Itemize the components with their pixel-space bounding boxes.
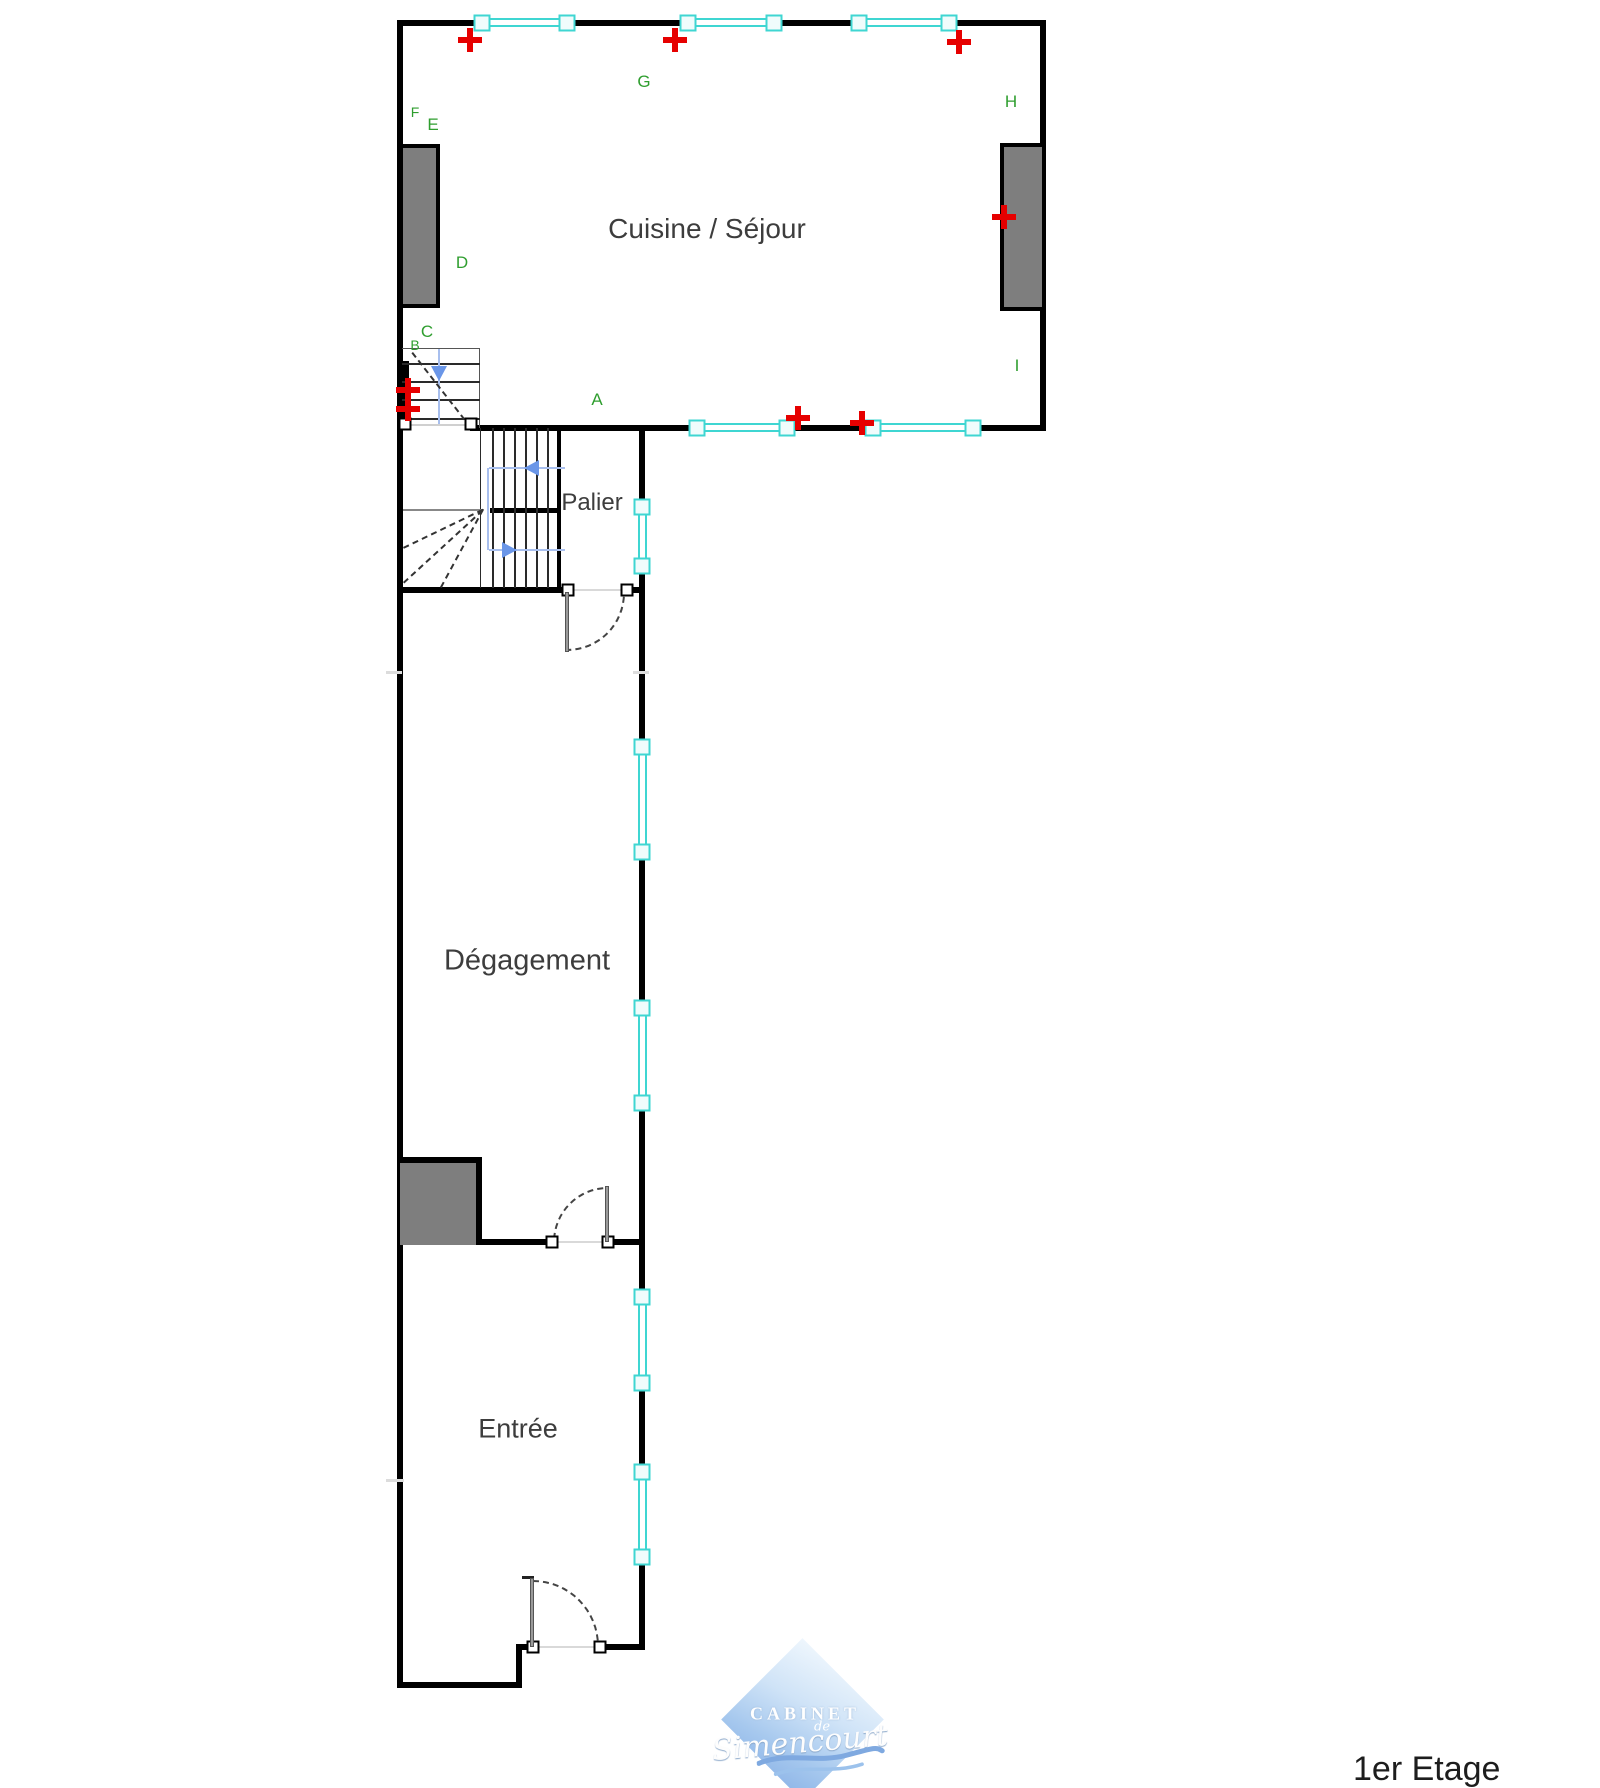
window-endpoint <box>634 1549 651 1566</box>
red-cross-marker <box>992 205 1016 229</box>
ref-letter-f: F <box>411 104 420 120</box>
door-post <box>594 1641 607 1654</box>
door-leaf <box>565 592 569 652</box>
window-cuisine-bottom-2 <box>873 423 973 432</box>
door-post <box>465 418 478 431</box>
stair-tread <box>547 428 549 588</box>
red-cross-marker <box>850 411 874 435</box>
stair-tread <box>402 363 480 365</box>
wall-entree-bottom-right <box>600 1644 645 1650</box>
window-top-2 <box>688 18 774 27</box>
winder-line-dashed <box>403 510 483 584</box>
wall-tick <box>386 1479 404 1482</box>
winder-line <box>403 509 482 511</box>
room-label-degagement: Dégagement <box>444 945 610 978</box>
stair-arrow-left-icon <box>524 460 539 476</box>
window-endpoint <box>634 1464 651 1481</box>
window-endpoint <box>634 739 651 756</box>
ref-letter-d: D <box>456 253 468 273</box>
ref-letter-c: C <box>421 322 433 342</box>
stair-path-vertical <box>487 468 489 550</box>
ref-letter-i: I <box>1015 356 1020 376</box>
window-corridor-4 <box>638 1297 647 1383</box>
floor-label: 1er Etage <box>1353 1750 1500 1788</box>
wall-tick <box>633 671 649 674</box>
stair-path-bottom <box>489 549 565 551</box>
door-post <box>546 1236 559 1249</box>
window-endpoint <box>634 1289 651 1306</box>
radiator-left <box>399 144 440 308</box>
door-swing-arc <box>553 1187 608 1242</box>
window-endpoint <box>634 844 651 861</box>
door-opening-line <box>539 1646 597 1648</box>
window-endpoint <box>634 1095 651 1112</box>
red-cross-marker <box>786 406 810 430</box>
door-leaf <box>530 1578 534 1647</box>
window-endpoint <box>634 499 651 516</box>
room-label-cuisine-sejour: Cuisine / Séjour <box>608 213 806 245</box>
ref-letter-g: G <box>637 72 650 92</box>
room-label-palier: Palier <box>561 489 622 517</box>
stair-tread <box>525 428 527 588</box>
red-cross-marker <box>458 28 482 52</box>
wall-entree-bottom <box>397 1682 522 1688</box>
door-leaf <box>605 1186 609 1242</box>
stair-tread <box>503 428 505 588</box>
red-cross-marker <box>396 397 420 421</box>
window-corridor-3 <box>638 1008 647 1103</box>
floorplan-canvas: A B C D E F G H I Cuisine / Séjour Palie… <box>0 0 1600 1788</box>
ref-letter-b: B <box>410 337 419 353</box>
window-corridor-2 <box>638 747 647 852</box>
window-endpoint <box>634 558 651 575</box>
window-top-3 <box>859 18 949 27</box>
window-corridor-5 <box>638 1472 647 1557</box>
chimney-block <box>400 1157 482 1245</box>
stair-tread <box>514 428 516 588</box>
window-endpoint <box>851 15 868 32</box>
window-endpoint <box>634 1375 651 1392</box>
wall-tick <box>386 671 402 674</box>
window-endpoint <box>965 420 982 437</box>
window-top-1 <box>482 18 567 27</box>
ref-letter-e: E <box>427 115 438 135</box>
stair-tread <box>492 428 494 588</box>
stair-tread <box>536 428 538 588</box>
window-endpoint <box>559 15 576 32</box>
stair-edge <box>480 428 481 588</box>
stair-arrow-right-icon <box>502 542 517 558</box>
window-endpoint <box>766 15 783 32</box>
room-label-entree: Entrée <box>478 1414 558 1445</box>
window-cuisine-bottom-1 <box>697 423 787 432</box>
door-swing-arc <box>533 1580 599 1646</box>
window-endpoint <box>689 420 706 437</box>
window-endpoint <box>634 1000 651 1017</box>
door-post <box>621 584 634 597</box>
ref-letter-h: H <box>1005 92 1017 112</box>
red-cross-marker <box>947 30 971 54</box>
door-swing-arc <box>567 593 625 651</box>
stairs-lower-flight <box>480 428 561 588</box>
ref-letter-a: A <box>591 390 602 410</box>
window-endpoint <box>941 15 958 32</box>
door-opening-line <box>573 589 623 591</box>
red-cross-marker <box>663 28 687 52</box>
